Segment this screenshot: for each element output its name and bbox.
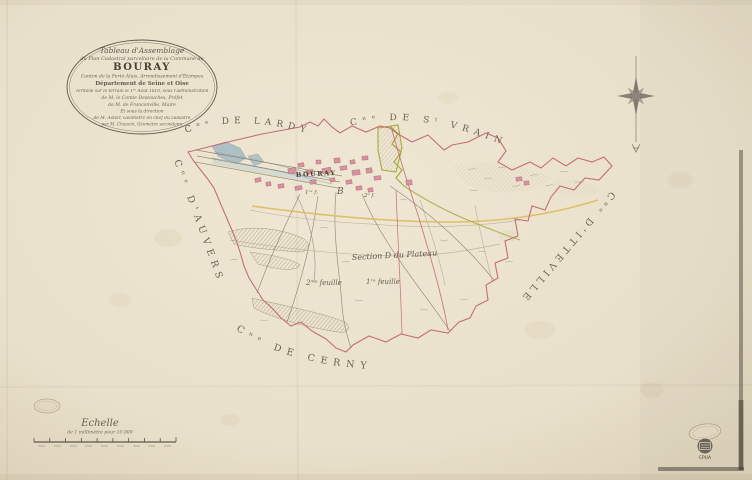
cartouche-line10: de M. Astier, Géomètre en chef du cadast…	[93, 116, 190, 121]
village-sheet-right: 2ᵉ f.	[363, 193, 375, 199]
cartouche-title: BOURAY	[113, 62, 171, 73]
cadastral-map-canvas: Tableau d'Assemblage du Plan Cadastral p…	[0, 0, 752, 480]
cartouche-line11: par M. Chauvin, Géomètre secondaire	[101, 122, 183, 127]
village-sheet-left: 1ʳᵉ f.	[305, 190, 318, 196]
cartouche-line6: Terminé sur le terrain le 1ᵉʳ Août 1810,…	[76, 89, 209, 94]
cartouche-line9: Et sous la direction	[119, 110, 163, 115]
bottom-edge-shade	[0, 474, 752, 480]
cartouche-line7: de M. le Comte Destouches, Préfet	[101, 94, 182, 101]
map-scan: Tableau d'Assemblage du Plan Cadastral p…	[0, 0, 752, 480]
scale-sublabel: de 1 millimètre pour 10.000	[67, 429, 133, 436]
sheet-note-right: 1ʳᵉ feuille	[366, 278, 400, 286]
paper-right-tone	[640, 0, 752, 480]
embossed-stamp-left-icon	[34, 399, 60, 413]
cartouche-line1: Tableau d'Assemblage	[100, 46, 185, 55]
scale-label: Echelle	[80, 418, 119, 429]
cartouche-line5: Département de Seine et Oise	[95, 80, 189, 87]
sheet-note-left: 2ᵐᵉ feuille	[305, 279, 342, 287]
village-section-letter: B	[336, 187, 344, 197]
cartouche-line8: de M. de Franconville, Maire	[108, 102, 176, 108]
archive-stamp-code: CPUA	[699, 455, 712, 461]
top-edge-shade	[0, 0, 752, 5]
archive-stamp-icon: CPUA	[698, 439, 713, 462]
